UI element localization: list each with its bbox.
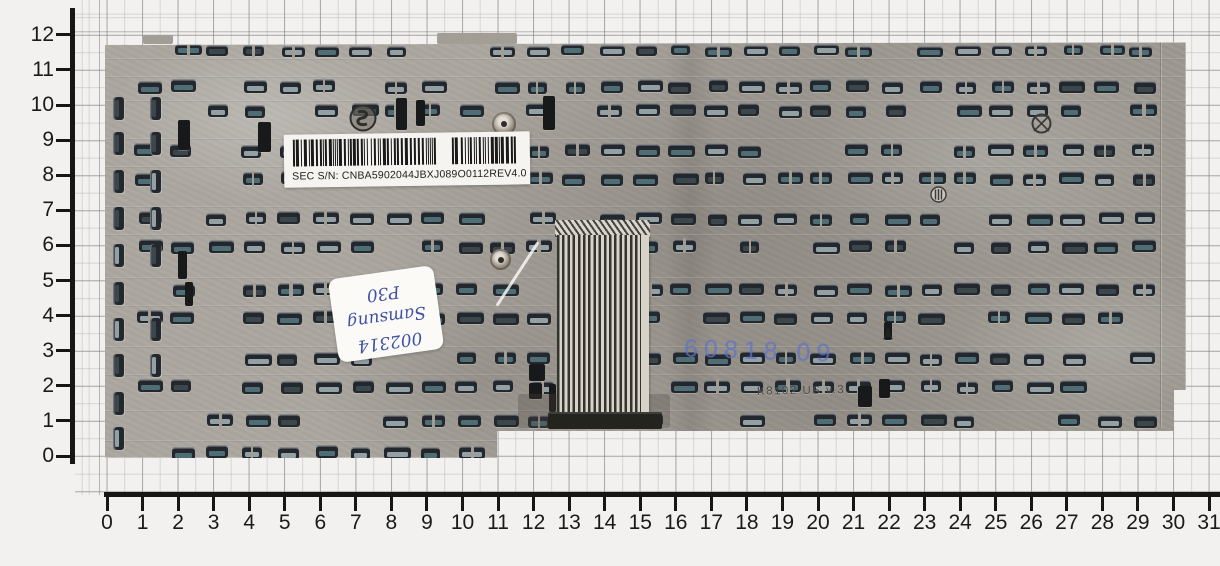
barcode-bar [405, 138, 408, 165]
keycap-clip-slot [601, 143, 625, 156]
left-ruler-tick [56, 314, 71, 317]
bottom-ruler-tick [1208, 497, 1211, 511]
keycap-clip-slot [882, 171, 903, 184]
keycap-clip-slot [1060, 380, 1087, 393]
keycap-clip-slot [810, 79, 832, 92]
bottom-ruler-tick [745, 497, 748, 511]
clip-slot-highlight [316, 85, 331, 90]
keycap-clip-slot [459, 212, 485, 225]
left-ruler-line [70, 8, 75, 464]
clip-slot-highlight [924, 419, 945, 424]
keycap-clip-slot [955, 351, 980, 364]
clip-slot-highlight [849, 111, 863, 116]
keycap-clip-slot [490, 46, 515, 57]
bottom-ruler-tick [959, 497, 962, 511]
clip-slot-highlight [386, 421, 405, 426]
keycap-clip-slot [245, 353, 272, 366]
clip-slot-highlight [1026, 150, 1045, 155]
clip-slot-highlight [569, 87, 582, 92]
bottom-ruler-tick [568, 497, 571, 511]
barcode-bar [311, 139, 314, 166]
keycap-clip-slot [814, 44, 838, 55]
clip-slot-highlight [813, 177, 829, 182]
keycap-clip-slot [990, 173, 1013, 186]
keycap-clip-vertical [150, 132, 161, 155]
plate-top-tab [143, 35, 173, 44]
keycap-clip-slot [886, 104, 905, 117]
clip-slot-highlight [319, 451, 336, 456]
stiffening-rib [105, 100, 1186, 102]
clip-slot-highlight [1097, 247, 1115, 252]
keycap-clip-vertical [113, 282, 124, 305]
keycap-clip-slot [353, 380, 374, 393]
barcode-bar [422, 138, 424, 165]
clip-slot-highlight [676, 178, 696, 183]
keycap-clip-slot [989, 213, 1013, 226]
revision-text: REV4.0 [489, 167, 527, 180]
bottom-ruler-number: 22 [869, 512, 909, 534]
clip-slot-highlight [887, 316, 902, 321]
left-ruler-number: 0 [16, 445, 54, 467]
keycap-clip-slot [386, 381, 413, 394]
keycap-clip-slot [1134, 415, 1158, 428]
clip-slot-highlight [884, 149, 899, 154]
clip-slot-highlight [174, 85, 193, 90]
keycap-clip-slot [422, 380, 446, 393]
barcode-bar [476, 137, 477, 164]
keycap-clip-slot [351, 240, 374, 253]
clip-slot-highlight [853, 357, 872, 362]
keycap-clip-slot [774, 312, 796, 325]
bottom-ruler-number: 16 [656, 512, 696, 534]
clip-slot-highlight [603, 49, 622, 54]
keycap-clip-slot [705, 282, 732, 295]
keycap-clip-slot [1028, 282, 1050, 295]
keycap-clip-slot [1129, 46, 1151, 57]
barcode-bar [465, 137, 466, 164]
clip-slot-highlight [1026, 179, 1043, 184]
clip-slot-highlight [245, 387, 260, 392]
serial-label: SEC S/N: CNBA5902044JBXJ089O0112 REV4.0 [284, 131, 531, 187]
clip-slot-highlight [994, 247, 1007, 252]
keycap-clip-slot [671, 44, 690, 55]
bottom-ruler-tick [497, 497, 500, 511]
clip-slot-highlight [352, 50, 369, 55]
clip-slot-highlight [1103, 48, 1122, 53]
clip-slot-highlight [152, 357, 156, 374]
keycap-clip-slot [282, 46, 305, 57]
bottom-ruler-number: 20 [798, 512, 838, 534]
barcode-bar [316, 139, 318, 166]
bottom-ruler-tick [888, 497, 891, 511]
clip-slot-highlight [994, 289, 1008, 294]
clip-slot-highlight [991, 149, 1011, 154]
keycap-clip-slot [206, 45, 228, 56]
keycap-clip-slot [208, 104, 228, 117]
keycap-clip-slot [1094, 144, 1115, 157]
clip-slot-highlight [152, 135, 156, 152]
clip-slot-highlight [888, 245, 902, 250]
barcode-bar [296, 140, 299, 167]
keycap-clip-slot [387, 46, 406, 57]
clip-slot-highlight [711, 219, 724, 224]
bottom-ruler-tick [177, 497, 180, 511]
barcode-bar [470, 137, 472, 164]
clip-slot-highlight [671, 87, 688, 92]
keycap-clip-slot [281, 381, 302, 394]
clip-slot-highlight [817, 290, 836, 295]
barcode-bar [357, 139, 359, 166]
keycap-clip-slot [670, 103, 696, 116]
clip-slot-highlight [958, 357, 977, 362]
bottom-ruler-tick [674, 497, 677, 511]
keycap-clip-slot [636, 45, 657, 56]
keycap-clip-slot [1130, 351, 1155, 364]
bottom-ruler-tick [1030, 497, 1033, 511]
left-ruler-tick [56, 209, 71, 212]
keycap-clip-slot [459, 446, 485, 459]
bottom-ruler-number: 13 [549, 512, 589, 534]
clip-slot-highlight [462, 218, 482, 223]
clip-slot-highlight [1097, 86, 1116, 91]
clip-slot-highlight [742, 86, 762, 91]
barcode-bar [387, 138, 389, 165]
keycap-clip-slot [565, 143, 591, 156]
clip-slot-highlight [706, 317, 726, 322]
handwriting: 002314 Samsung P30 [330, 267, 442, 360]
keycap-clip-slot [740, 310, 765, 323]
clip-slot-highlight [141, 87, 159, 92]
left-ruler-tick [56, 419, 71, 422]
left-ruler-tick [56, 68, 71, 71]
clip-slot-highlight [848, 149, 865, 154]
clip-slot-highlight [281, 289, 301, 294]
recycle-emblem-icon [348, 103, 378, 133]
bottom-ruler-tick [532, 497, 535, 511]
keycap-clip-slot [246, 211, 265, 224]
clip-slot-highlight [1136, 289, 1152, 294]
clip-slot-highlight [210, 419, 230, 424]
clip-slot-highlight [888, 219, 908, 224]
stiffening-rib [105, 206, 1186, 208]
clip-slot-highlight [320, 246, 338, 251]
keycap-clip-vertical [113, 132, 124, 155]
keycap-clip-slot [991, 283, 1011, 296]
bottom-ruler-tick [1172, 497, 1175, 511]
clip-slot-highlight [425, 386, 443, 391]
keycap-clip-slot [175, 44, 201, 55]
keycap-clip-slot [457, 351, 476, 364]
clip-slot-highlight [389, 387, 410, 392]
keycap-clip-slot [1135, 211, 1156, 224]
keycap-clip-vertical [113, 354, 124, 377]
keycap-clip-slot [566, 81, 585, 94]
clip-slot-highlight [1028, 317, 1048, 322]
clip-slot-highlight [712, 85, 726, 90]
keycap-clip-slot [846, 79, 869, 92]
clip-slot-highlight [388, 87, 404, 92]
ribbon-cable [548, 220, 666, 428]
clip-slot-highlight [283, 87, 297, 92]
clip-slot-highlight [462, 452, 482, 457]
left-ruler-number: 4 [16, 305, 54, 327]
barcode-bar [350, 139, 352, 166]
keycap-clip-slot [743, 172, 765, 185]
left-ruler-number: 12 [16, 24, 54, 46]
bottom-ruler-number: 30 [1154, 512, 1194, 534]
keycap-clip-slot [989, 104, 1013, 117]
clip-slot-highlight [1137, 87, 1153, 92]
keycap-clip-slot [278, 414, 300, 427]
clip-slot-highlight [565, 179, 582, 184]
keycap-clip-slot [668, 144, 695, 157]
keycap-clip-slot [316, 381, 342, 394]
clip-slot-highlight [212, 246, 231, 251]
keycap-clip-slot [671, 380, 697, 393]
cable-conductor-stripes [557, 235, 649, 416]
barcode-bar [455, 137, 458, 164]
keycap-clip-slot [814, 284, 839, 297]
clip-slot-highlight [1065, 318, 1082, 323]
keycap-clip-slot [673, 239, 696, 252]
clip-slot-highlight [816, 247, 836, 252]
left-ruler-number: 11 [16, 59, 54, 81]
arrow-mark-icon [881, 326, 895, 342]
clip-slot-highlight [460, 357, 473, 362]
keycap-clip-slot [633, 173, 658, 186]
keycap-clip-slot [1062, 312, 1085, 325]
clip-slot-highlight [957, 151, 972, 156]
keycap-clip-slot [738, 213, 762, 226]
bottom-ruler-number: 8 [371, 512, 411, 534]
keycap-clip-slot [422, 80, 447, 93]
barcode-bar [339, 139, 342, 166]
keycap-clip-slot [1027, 81, 1050, 94]
clip-slot-highlight [778, 289, 794, 294]
keycap-clip-slot [810, 213, 831, 226]
keycap-clip-slot [562, 173, 585, 186]
keycap-clip-vertical [113, 427, 124, 450]
clip-slot-highlight [152, 210, 156, 227]
keycap-clip-slot [847, 413, 872, 426]
clip-slot-highlight [742, 288, 761, 293]
keycap-clip-slot [922, 283, 942, 296]
barcode-bar [397, 138, 399, 165]
keycap-clip-slot [316, 445, 339, 458]
clip-slot-highlight [461, 420, 479, 425]
keycap-clip-slot [245, 105, 266, 118]
clip-slot-highlight [285, 50, 302, 55]
keycap-clip-slot [455, 380, 477, 393]
clip-slot-highlight [390, 218, 409, 223]
clip-slot-highlight [246, 317, 261, 322]
keycap-clip-slot [739, 80, 765, 93]
clip-slot-highlight [1102, 217, 1122, 222]
blue-hand-stamp: 60818 09 [684, 334, 837, 368]
clip-slot-highlight [777, 318, 793, 323]
keycap-clip-slot [493, 312, 518, 325]
keycap-clip-slot [882, 413, 907, 426]
keycap-clip-slot [561, 44, 584, 55]
barcode-bar [514, 136, 516, 163]
bottom-ruler-number: 5 [265, 512, 305, 534]
keycap-clip-slot [779, 45, 800, 56]
keycap-clip-slot [246, 414, 271, 427]
clip-slot-highlight [115, 430, 119, 447]
bottom-ruler-tick [710, 497, 713, 511]
keycap-clip-slot [920, 213, 940, 226]
clip-slot-highlight [1135, 245, 1153, 250]
clip-slot-highlight [1101, 317, 1120, 322]
keycap-clip-slot [138, 81, 162, 94]
bottom-ruler-tick [461, 497, 464, 511]
keycap-clip-slot [1059, 80, 1085, 93]
keycap-clip-slot [171, 379, 191, 392]
keycap-clip-slot [209, 240, 234, 253]
keycap-clip-slot [636, 103, 660, 116]
clip-slot-highlight [317, 358, 337, 363]
clip-slot-highlight [387, 452, 408, 457]
keycap-clip-slot [992, 379, 1013, 392]
clip-slot-highlight [115, 173, 119, 190]
clip-slot-highlight [1061, 419, 1077, 424]
bottom-ruler-tick [425, 497, 428, 511]
clip-slot-highlight [639, 150, 657, 155]
keycap-clip-slot [278, 283, 304, 296]
bottom-ruler-number: 28 [1082, 512, 1122, 534]
clip-slot-highlight [1030, 87, 1047, 92]
clip-slot-highlight [708, 177, 721, 182]
left-ruler-number: 9 [16, 129, 54, 151]
clip-slot-highlight [1066, 149, 1080, 154]
keycap-clip-slot [313, 211, 339, 224]
clip-slot-highlight [1027, 359, 1041, 364]
latch-clip [858, 386, 872, 407]
clip-slot-highlight [743, 316, 762, 321]
left-ruler-tick [56, 384, 71, 387]
latch-clip [178, 120, 190, 150]
keycap-clip-slot [244, 80, 267, 93]
clip-slot-highlight [284, 247, 302, 252]
keycap-clip-slot [921, 413, 948, 426]
clip-slot-highlight [995, 385, 1010, 390]
keycap-clip-slot [170, 311, 194, 324]
keycap-clip-slot [954, 241, 974, 254]
clip-slot-highlight [674, 48, 687, 53]
keycap-clip-slot [601, 173, 623, 186]
clip-slot-highlight [498, 357, 513, 362]
left-ruler-number: 8 [16, 164, 54, 186]
bottom-ruler-tick [1101, 497, 1104, 511]
keycap-clip-slot [315, 104, 338, 117]
keycap-clip-slot [882, 81, 903, 94]
keycap-clip-slot [740, 414, 765, 427]
clip-slot-highlight [639, 49, 654, 54]
clip-slot-highlight [849, 85, 866, 90]
bottom-ruler-number: 26 [1011, 512, 1051, 534]
keycap-clip-slot [954, 415, 974, 428]
barcode-bar [434, 138, 436, 165]
keycap-clip-slot [992, 80, 1015, 93]
barcode [452, 136, 520, 164]
clip-slot-highlight [178, 48, 198, 53]
clip-slot-highlight [390, 50, 403, 55]
clip-slot-highlight [1063, 219, 1082, 224]
clip-slot-highlight [568, 149, 588, 154]
bottom-ruler-number: 12 [514, 512, 554, 534]
clip-slot-highlight [1101, 421, 1119, 426]
keycap-clip-slot [992, 45, 1012, 56]
clip-slot-highlight [888, 290, 909, 295]
barcode-bar [364, 139, 365, 166]
keycap-clip-slot [597, 104, 622, 117]
left-ruler-number: 6 [16, 234, 54, 256]
keycap-clip-slot [705, 143, 727, 156]
barcode-bar [391, 138, 392, 165]
keycap-clip-slot [738, 145, 761, 158]
keycap-clip-slot [314, 352, 340, 365]
handwritten-sticker: 002314 Samsung P30 [328, 265, 445, 363]
keycap-clip-vertical [113, 170, 124, 193]
clip-slot-highlight [316, 217, 336, 222]
clip-slot-highlight [318, 110, 335, 115]
keycap-clip-slot [383, 415, 408, 428]
clip-slot-highlight [115, 135, 119, 152]
keycap-clip-slot [528, 171, 553, 184]
keycap-clip-slot [673, 172, 699, 185]
clip-slot-highlight [425, 245, 440, 250]
keycap-clip-slot [705, 46, 732, 57]
bottom-ruler-number: 17 [691, 512, 731, 534]
clip-slot-highlight [319, 387, 339, 392]
clip-slot-highlight [1031, 288, 1047, 293]
left-ruler-tick [56, 104, 71, 107]
clip-slot-highlight [532, 151, 546, 156]
clip-slot-highlight [1030, 387, 1051, 392]
cable-connector [548, 412, 662, 429]
clip-slot-highlight [636, 179, 655, 184]
keycap-clip-slot [917, 46, 942, 57]
keycap-clip-slot [458, 414, 482, 427]
keycap-clip-slot [495, 351, 516, 364]
bottom-ruler-tick [852, 497, 855, 511]
clip-slot-highlight [460, 317, 481, 322]
keycap-clip-vertical [150, 207, 161, 230]
bottom-ruler-number: 25 [976, 512, 1016, 534]
clip-slot-highlight [708, 149, 724, 154]
clip-slot-highlight [281, 453, 296, 458]
clip-slot-highlight [921, 318, 942, 323]
clip-slot-highlight [708, 50, 729, 55]
keycap-clip-slot [814, 413, 837, 426]
clip-slot-highlight [1067, 48, 1081, 53]
clip-slot-highlight [813, 110, 828, 115]
barcode-bar [479, 137, 481, 164]
keycap-clip-slot [988, 143, 1014, 156]
keycap-clip-slot [384, 446, 411, 459]
keycap-clip-slot [1059, 282, 1084, 295]
clip-slot-highlight [458, 386, 474, 391]
clip-slot-highlight [885, 87, 900, 92]
barcode-bar [371, 138, 372, 165]
clip-slot-highlight [1133, 109, 1154, 114]
bottom-ruler-line [104, 492, 1220, 497]
keycap-clip-slot [1059, 171, 1084, 184]
keycap-clip-slot [422, 414, 445, 427]
keycap-clip-slot [920, 353, 943, 366]
clip-slot-highlight [1063, 386, 1084, 391]
clip-slot-highlight [991, 316, 1006, 321]
